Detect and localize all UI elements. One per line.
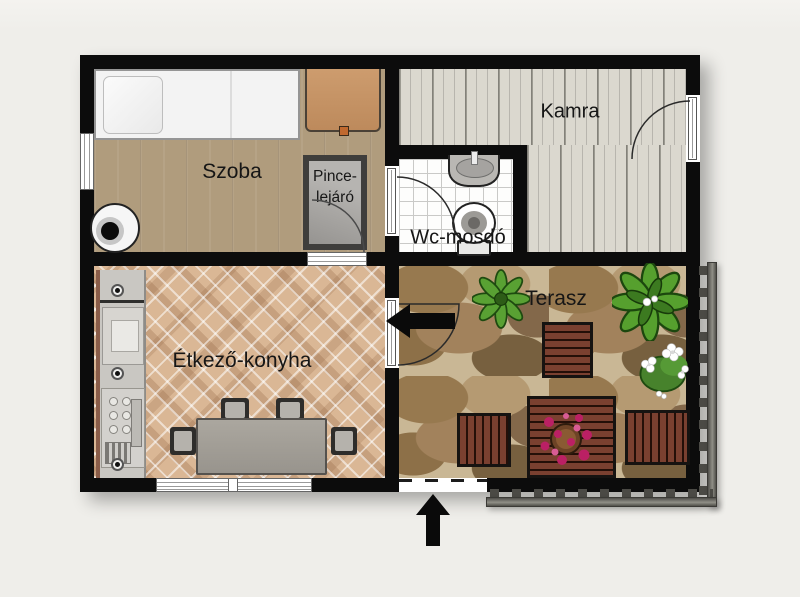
terrace-bench-right xyxy=(625,410,690,465)
sink-tap xyxy=(471,151,478,165)
stove xyxy=(101,388,145,468)
basement-label: Pince- lejáró xyxy=(309,167,361,209)
room-label-terasz: Terasz xyxy=(525,287,587,311)
bed xyxy=(94,69,300,140)
kitchen-sink xyxy=(102,307,144,365)
fence-right xyxy=(699,262,717,507)
stove-burner xyxy=(122,425,131,434)
basement-label-line1: Pince- xyxy=(309,167,361,188)
doorway-bathroom xyxy=(385,166,399,236)
room-label-szoba: Szoba xyxy=(202,160,262,184)
desk xyxy=(305,69,381,132)
window-szoba-kitchen xyxy=(307,252,367,266)
counter-knob-top xyxy=(111,284,124,297)
dining-chair xyxy=(170,427,196,455)
terrace-gate-opening xyxy=(399,478,487,492)
room-kamra-floor-lower xyxy=(527,145,686,252)
stove-burner xyxy=(122,397,131,406)
counter-knob-bottom xyxy=(111,458,124,471)
kamra-door-leaf xyxy=(688,97,697,160)
oven-handle xyxy=(131,399,142,447)
doorway-kamra xyxy=(686,95,700,162)
kitchen-counter xyxy=(96,270,146,478)
dining-table xyxy=(196,418,327,475)
entrance-arrow-up-icon xyxy=(414,492,452,548)
window-mullion xyxy=(228,478,238,492)
stove-burner xyxy=(109,411,118,420)
entrance-arrow-left-icon xyxy=(384,300,458,342)
pillow xyxy=(103,76,163,134)
stove-burner xyxy=(109,397,118,406)
fence-bottom-rail xyxy=(486,497,717,507)
round-chair-core xyxy=(101,222,119,240)
stove-burner xyxy=(122,411,131,420)
terrace-bench-left xyxy=(457,413,511,467)
room-label-wc: Wc-mosdó xyxy=(410,227,506,250)
round-chair xyxy=(90,203,140,253)
terrace-bench-top xyxy=(542,322,593,378)
room-label-kamra: Kamra xyxy=(541,101,600,124)
desk-chair-knob xyxy=(339,126,349,136)
sink xyxy=(448,155,500,187)
counter-knob-middle xyxy=(111,367,124,380)
basement-label-line2: lejáró xyxy=(309,188,361,209)
kitchen-sink-basin xyxy=(111,320,139,352)
room-label-konyha: Étkező-konyha xyxy=(173,349,312,373)
stove-burner xyxy=(109,425,118,434)
dining-chair xyxy=(331,427,357,455)
bathroom-door-leaf xyxy=(387,168,396,234)
floor-plan-canvas: Pince- lejáró xyxy=(0,0,800,597)
window-szoba-left xyxy=(80,133,94,190)
fence-right-rail xyxy=(707,262,717,507)
basement-stairs: Pince- lejáró xyxy=(303,155,367,250)
window-kitchen-bottom xyxy=(156,478,312,492)
terrace-table xyxy=(527,396,616,478)
fence-bottom xyxy=(486,489,717,507)
counter-divider xyxy=(100,300,144,303)
